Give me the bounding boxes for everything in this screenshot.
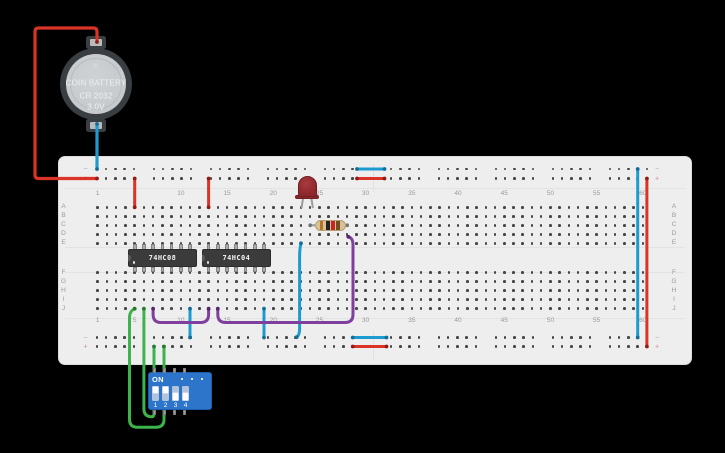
dip-tick-dot [191, 378, 194, 381]
led-cathode-to-ground-endpoint[interactable] [295, 335, 299, 339]
ic-pin[interactable] [262, 267, 266, 273]
ic-74hc04[interactable]: 74HC04 [202, 249, 272, 267]
bottom-rail-bridge-negative-endpoint[interactable] [385, 336, 389, 340]
dip-handle-1[interactable] [152, 386, 159, 395]
dip-switch[interactable]: ON 1234 [148, 372, 212, 410]
ic-pin[interactable] [142, 267, 146, 273]
ic-pin[interactable] [170, 267, 174, 273]
battery-positive-wire[interactable] [35, 28, 97, 179]
inverter-output-to-resistor-endpoint[interactable] [216, 307, 220, 311]
right-rail-jumper-negative-endpoint[interactable] [636, 167, 640, 171]
dip-slider-3[interactable] [172, 386, 179, 401]
circuit-canvas: 1155101015152020252530303535404045455050… [0, 0, 725, 453]
dip-pin-top[interactable] [183, 368, 187, 373]
dip-number: 1 [154, 402, 158, 409]
dip-pin-bottom[interactable] [163, 410, 167, 415]
led-cathode-to-ground-endpoint[interactable] [299, 241, 303, 245]
dip-number: 3 [174, 402, 178, 409]
vcc-jumper-ic1-endpoint[interactable] [133, 205, 137, 209]
dip-slider-2[interactable] [162, 386, 169, 401]
dip-pin-top[interactable] [163, 368, 167, 373]
inverter-output-to-resistor-endpoint[interactable] [346, 235, 350, 239]
dip-tick-dot [201, 378, 204, 381]
ic-pin[interactable] [216, 267, 220, 273]
dip-on-label: ON [152, 375, 164, 384]
dip-slider-1[interactable] [152, 386, 159, 401]
dip-handle-2[interactable] [162, 386, 169, 395]
ic-notch-icon [128, 255, 132, 262]
switch1-to-ic1-input-endpoint[interactable] [142, 307, 146, 311]
right-rail-jumper-positive-endpoint[interactable] [645, 345, 649, 349]
right-rail-jumper-negative-endpoint[interactable] [636, 336, 640, 340]
ic-notch-icon [202, 255, 206, 262]
ic2-ground-jumper-endpoint[interactable] [262, 336, 266, 340]
dip-pin-bottom[interactable] [173, 410, 177, 415]
resistor[interactable] [315, 220, 346, 231]
top-rail-bridge-negative-endpoint[interactable] [383, 167, 387, 171]
switch1-power-wire-endpoint[interactable] [152, 345, 156, 349]
dip-tick-dot [181, 378, 184, 381]
bottom-rail-bridge-negative-endpoint[interactable] [351, 336, 355, 340]
ic-pin[interactable] [133, 267, 137, 273]
dip-slider-4[interactable] [182, 386, 189, 401]
ic2-ground-jumper-endpoint[interactable] [262, 307, 266, 311]
bottom-rail-bridge-positive-endpoint[interactable] [351, 345, 355, 349]
resistor-band-brown [320, 221, 324, 230]
ic-pin1-dot [207, 261, 209, 263]
right-rail-jumper-positive-endpoint[interactable] [645, 177, 649, 181]
switch2-to-ic1-input-endpoint[interactable] [133, 307, 137, 311]
ic-pin1-dot [133, 261, 135, 263]
ic-label: 74HC04 [223, 254, 251, 262]
ic-pin[interactable] [244, 267, 248, 273]
battery-negative-wire-endpoint[interactable] [95, 122, 99, 126]
ic-pin[interactable] [188, 267, 192, 273]
ic-pin[interactable] [151, 267, 155, 273]
dip-pin-top[interactable] [153, 368, 157, 373]
dip-number: 2 [164, 402, 168, 409]
wire-layer [0, 0, 725, 453]
resistor-band-red [331, 221, 335, 230]
and-output-to-inverter-input-endpoint[interactable] [207, 307, 211, 311]
and-output-to-inverter-input[interactable] [153, 309, 209, 323]
ic-label: 74HC08 [149, 254, 177, 262]
battery-positive-wire-endpoint[interactable] [95, 40, 99, 44]
resistor-band-black [326, 221, 330, 230]
ic-pin[interactable] [234, 267, 238, 273]
dip-pin-bottom[interactable] [153, 410, 157, 415]
ic1-ground-jumper-endpoint[interactable] [188, 336, 192, 340]
battery-negative-wire-endpoint[interactable] [95, 167, 99, 171]
ic1-ground-jumper-endpoint[interactable] [188, 307, 192, 311]
dip-handle-4[interactable] [182, 392, 189, 401]
ic-pin[interactable] [207, 267, 211, 273]
bottom-rail-bridge-positive-endpoint[interactable] [385, 345, 389, 349]
top-rail-bridge-negative-endpoint[interactable] [355, 167, 359, 171]
battery-positive-wire-endpoint[interactable] [95, 177, 99, 181]
dip-pin-bottom[interactable] [183, 410, 187, 415]
dip-pin-top[interactable] [173, 368, 177, 373]
dip-number: 4 [184, 402, 188, 409]
ic-pin[interactable] [161, 267, 165, 273]
top-rail-bridge-positive-endpoint[interactable] [383, 177, 387, 181]
dip-handle-3[interactable] [172, 392, 179, 401]
ic-pin[interactable] [225, 267, 229, 273]
vcc-jumper-ic1-endpoint[interactable] [133, 177, 137, 181]
vcc-jumper-ic2-endpoint[interactable] [207, 205, 211, 209]
ic-74hc08[interactable]: 74HC08 [128, 249, 198, 267]
resistor-lead-endpoint[interactable] [308, 223, 312, 227]
top-rail-bridge-positive-endpoint[interactable] [355, 177, 359, 181]
and-output-to-inverter-input-endpoint[interactable] [151, 307, 155, 311]
resistor-band-gold [336, 221, 340, 230]
ic-pin[interactable] [179, 267, 183, 273]
resistor-lead-endpoint[interactable] [345, 223, 349, 227]
switch2-power-wire-endpoint[interactable] [162, 345, 166, 349]
ic-pin[interactable] [253, 267, 257, 273]
vcc-jumper-ic2-endpoint[interactable] [207, 177, 211, 181]
led-dome [298, 176, 317, 197]
